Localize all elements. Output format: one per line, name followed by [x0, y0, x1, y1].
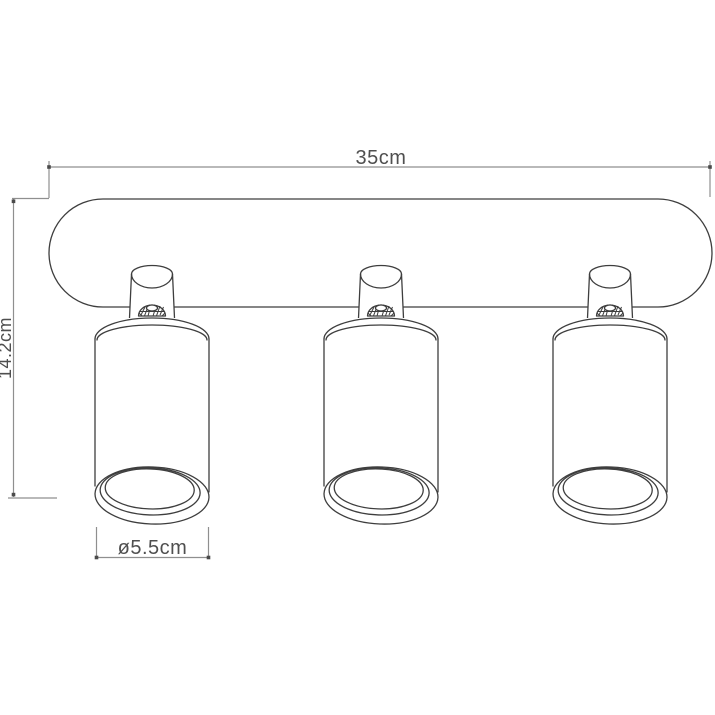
width-tick-left [47, 165, 51, 169]
dimension-width: 35cm [47, 147, 712, 198]
dimension-height: 14.2cm [0, 199, 57, 499]
diameter-tick-left [95, 556, 99, 560]
diameter-dimension-label: ø5.5cm [118, 537, 188, 559]
spotlight-3-body [552, 318, 668, 526]
spotlight-2-body [323, 318, 439, 526]
drawing-canvas: 35cm 14.2cm ø5.5cm [0, 0, 715, 715]
height-dimension-label: 14.2cm [0, 317, 15, 379]
diameter-tick-right [207, 556, 211, 560]
height-tick-bottom [12, 493, 16, 497]
width-dimension-label: 35cm [356, 147, 407, 169]
dimension-diameter: ø5.5cm [95, 527, 211, 559]
spotlight-1-body [94, 318, 210, 526]
height-tick-top [12, 200, 16, 204]
product-dimension-diagram: 35cm 14.2cm ø5.5cm [0, 0, 715, 715]
width-tick-right [708, 165, 712, 169]
